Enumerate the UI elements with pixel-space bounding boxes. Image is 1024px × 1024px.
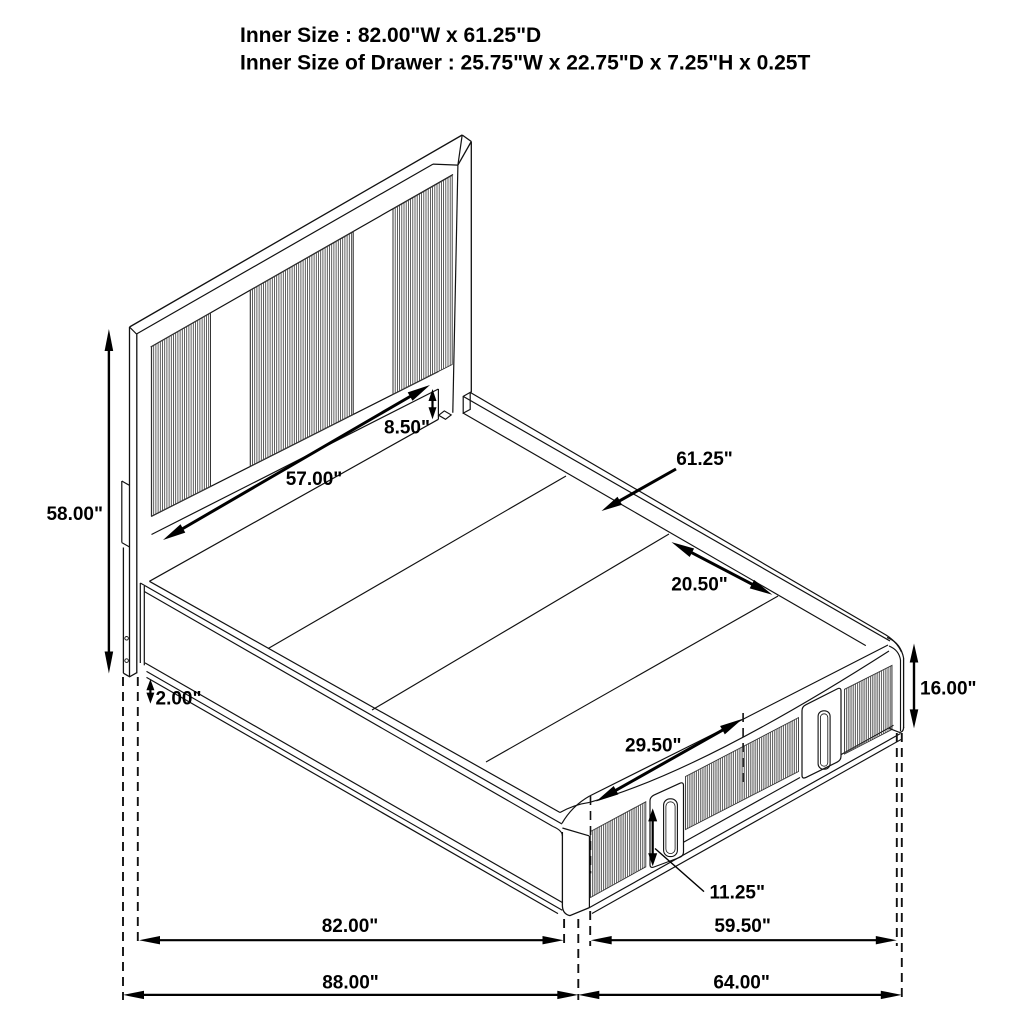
svg-text:88.00": 88.00" [322,973,379,994]
svg-text:11.25": 11.25" [710,883,766,904]
svg-text:2.00": 2.00" [156,689,202,710]
svg-text:20.50": 20.50" [671,575,728,596]
svg-text:29.50": 29.50" [625,736,682,757]
svg-text:Inner Size : 82.00"W x 61.25"D: Inner Size : 82.00"W x 61.25"D [240,24,541,47]
svg-text:82.00": 82.00" [322,916,379,937]
svg-text:Inner Size of Drawer : 25.75"W: Inner Size of Drawer : 25.75"W x 22.75"D… [240,52,810,75]
svg-text:8.50": 8.50" [384,418,430,439]
svg-text:57.00": 57.00" [286,469,343,490]
svg-text:16.00": 16.00" [920,679,977,700]
svg-text:58.00": 58.00" [46,504,103,525]
svg-text:64.00": 64.00" [713,973,770,994]
svg-text:61.25": 61.25" [676,449,733,470]
svg-text:59.50": 59.50" [714,916,771,937]
